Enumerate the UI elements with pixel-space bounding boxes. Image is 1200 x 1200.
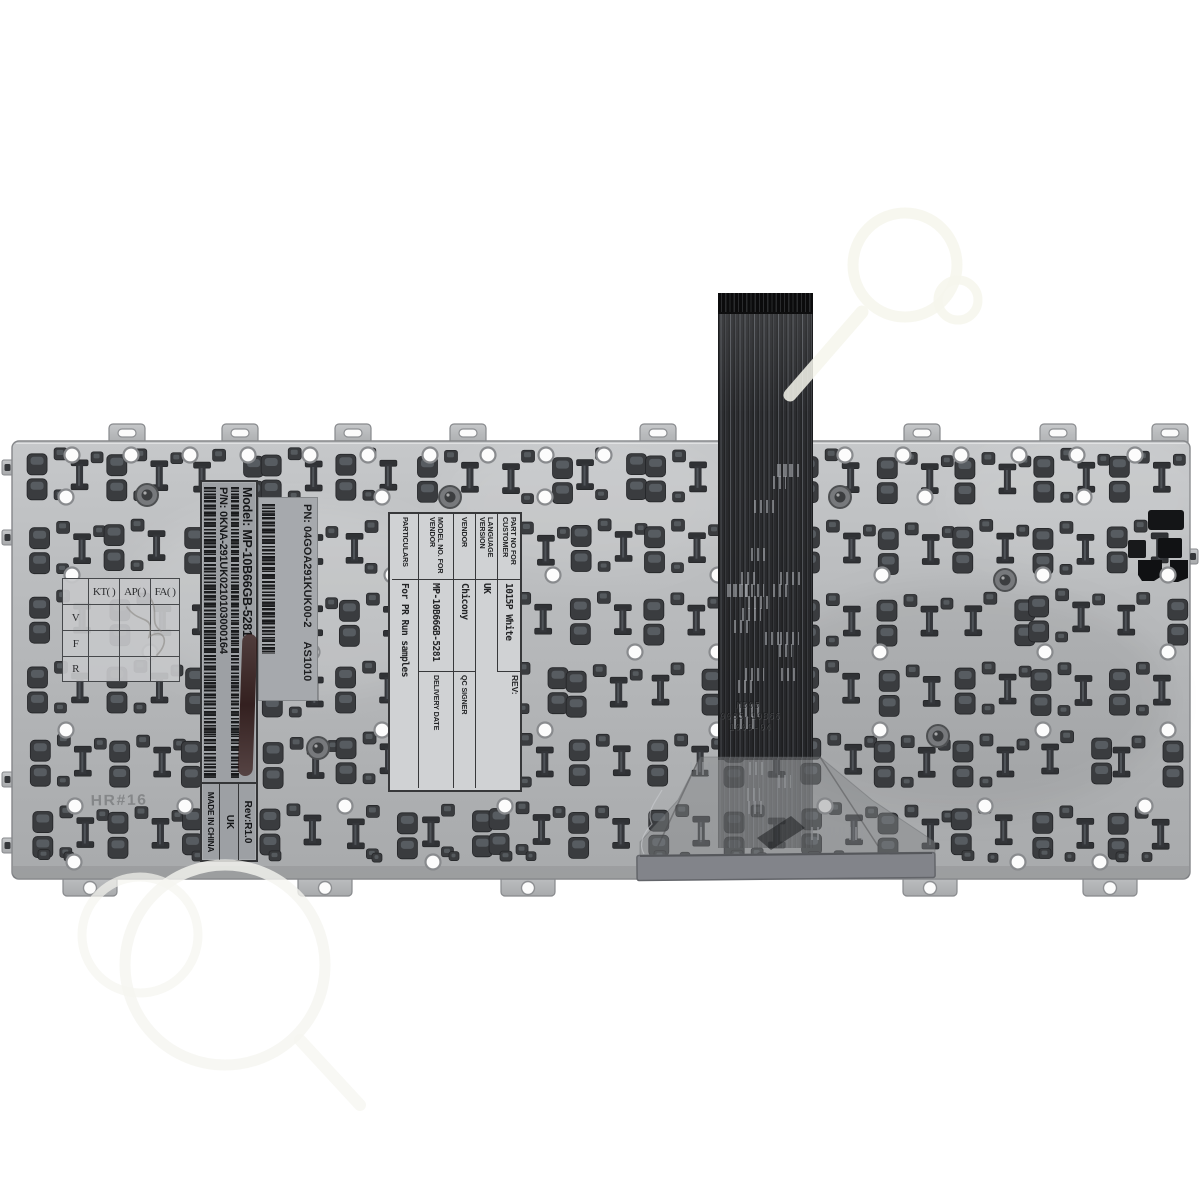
product-photo: Model: MP-10B66GB-5281 P/N: 0KNA-291UK02…: [0, 0, 1200, 1200]
photo-watermark: [0, 0, 1200, 1200]
